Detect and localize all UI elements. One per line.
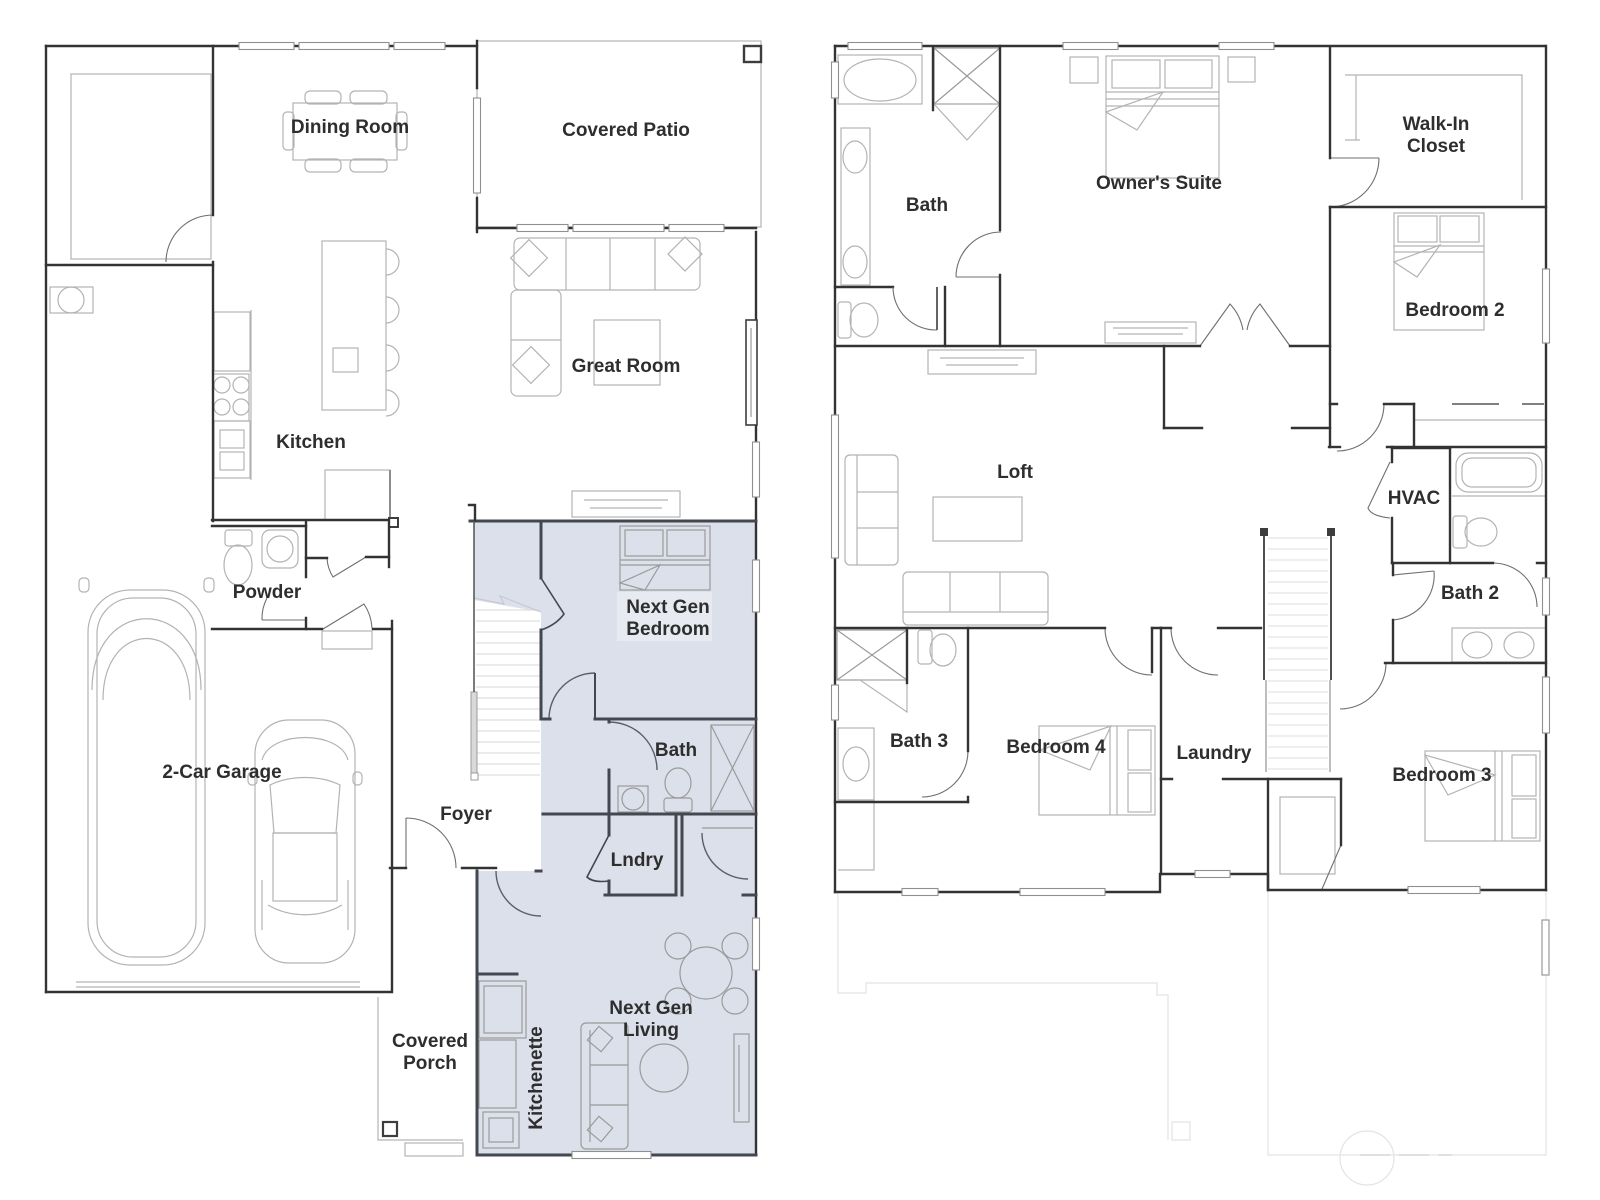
svg-text:Laundry: Laundry <box>1177 743 1252 764</box>
svg-text:Living: Living <box>623 1020 679 1041</box>
svg-text:Closet: Closet <box>1407 136 1466 157</box>
svg-text:Owner's Suite: Owner's Suite <box>1096 173 1222 194</box>
svg-text:HVAC: HVAC <box>1388 488 1441 509</box>
svg-text:Kitchenette: Kitchenette <box>526 1026 547 1129</box>
svg-text:Powder: Powder <box>233 582 302 603</box>
svg-text:Bedroom 3: Bedroom 3 <box>1392 765 1491 786</box>
svg-text:Kitchen: Kitchen <box>276 432 346 453</box>
svg-text:Porch: Porch <box>403 1053 457 1074</box>
svg-text:Foyer: Foyer <box>440 804 492 825</box>
svg-text:Bedroom 2: Bedroom 2 <box>1405 300 1504 321</box>
svg-text:Next Gen: Next Gen <box>626 597 709 618</box>
svg-text:Covered Patio: Covered Patio <box>562 120 690 141</box>
svg-text:Bath 2: Bath 2 <box>1441 583 1499 604</box>
svg-text:Bath: Bath <box>655 740 697 761</box>
svg-text:Bedroom 4: Bedroom 4 <box>1006 737 1106 758</box>
svg-text:Great Room: Great Room <box>572 356 681 377</box>
svg-text:2-Car Garage: 2-Car Garage <box>162 762 281 783</box>
svg-text:Loft: Loft <box>997 462 1034 483</box>
svg-text:Lndry: Lndry <box>611 850 664 871</box>
svg-text:Bath: Bath <box>906 195 948 216</box>
svg-text:Bath 3: Bath 3 <box>890 731 948 752</box>
svg-text:Next Gen: Next Gen <box>609 998 692 1019</box>
svg-text:Covered: Covered <box>392 1031 468 1052</box>
svg-text:Walk-In: Walk-In <box>1403 114 1470 135</box>
svg-text:Dining Room: Dining Room <box>291 117 409 138</box>
svg-text:Bedroom: Bedroom <box>626 619 709 640</box>
